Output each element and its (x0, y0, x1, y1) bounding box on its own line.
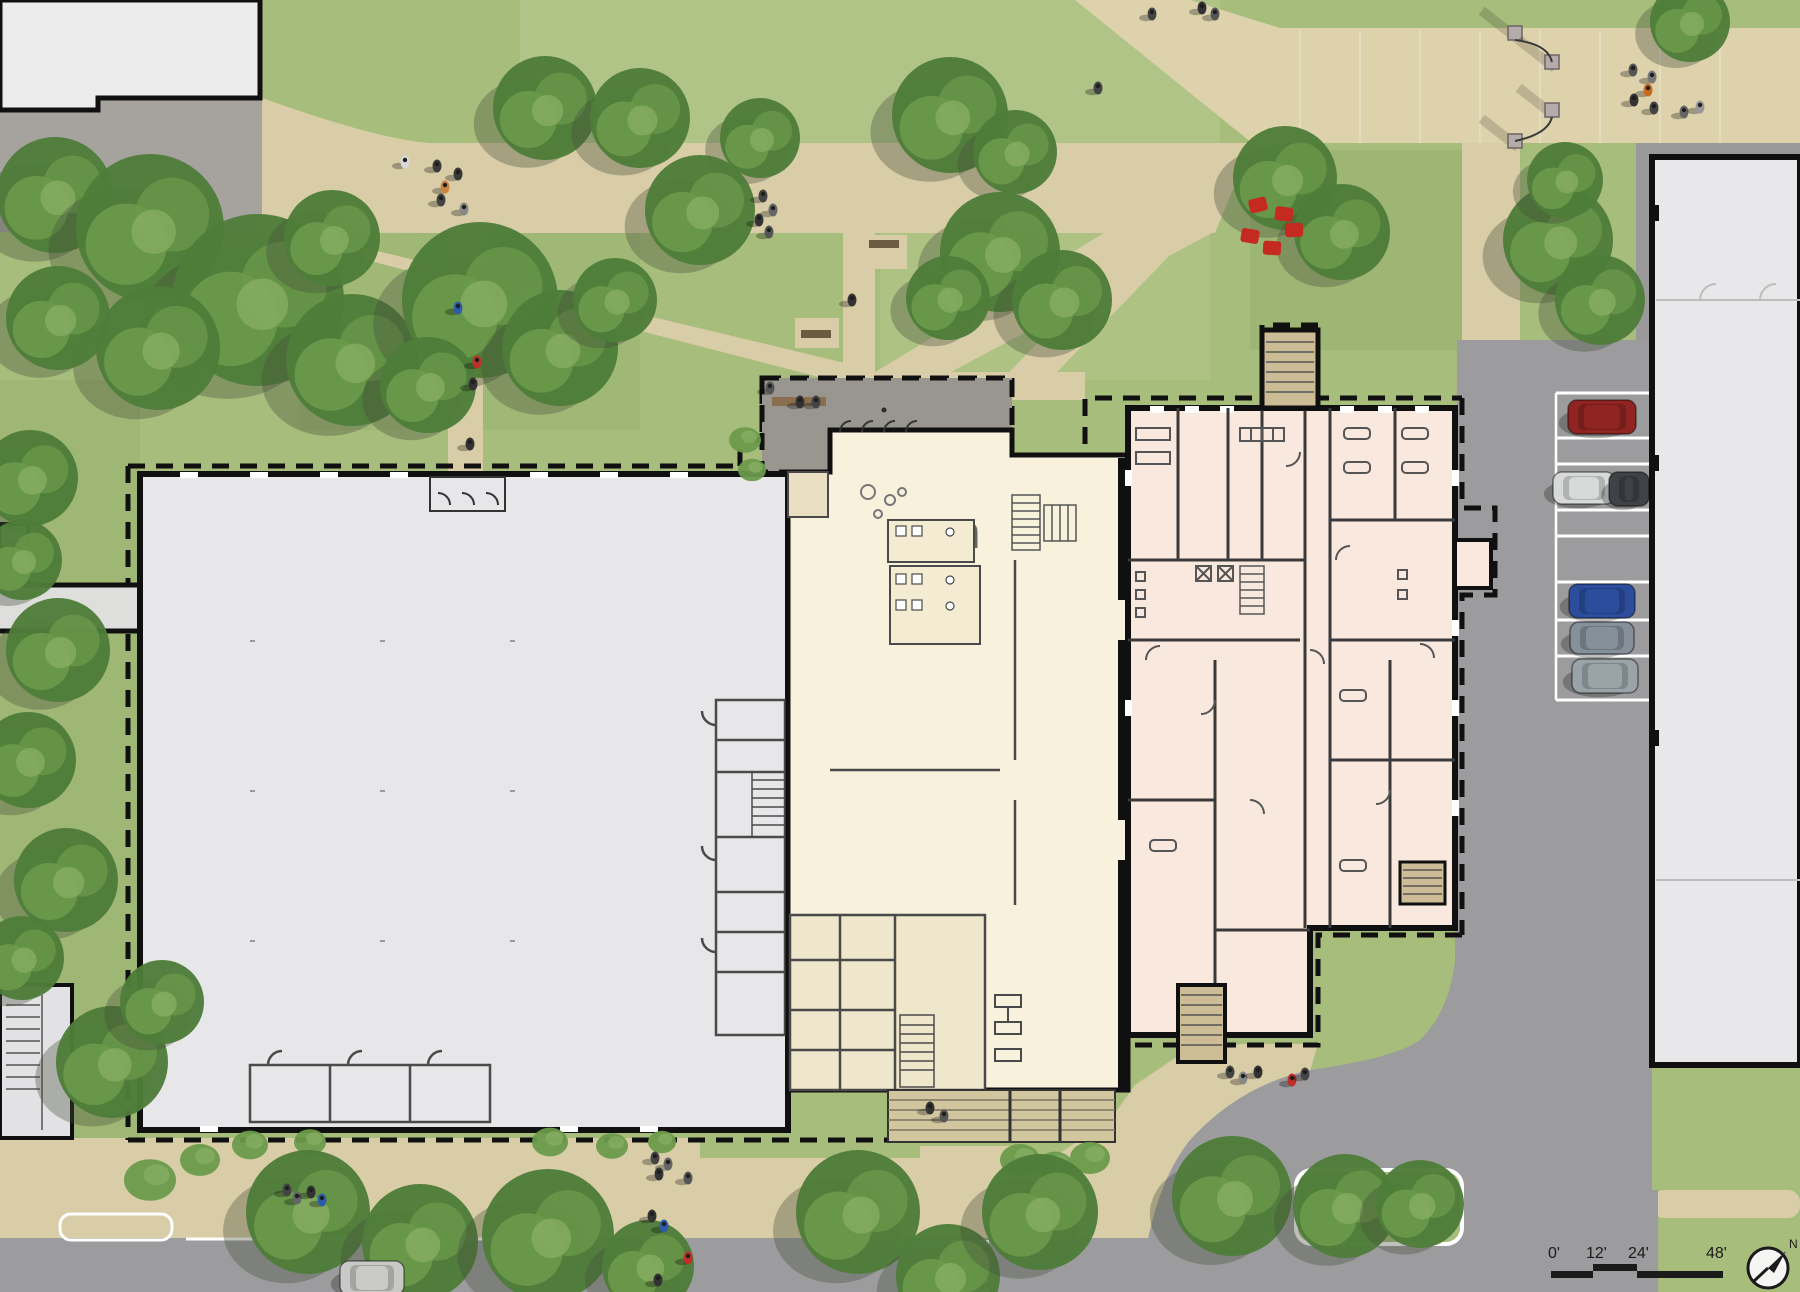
scale-label-0: 0' (1548, 1245, 1560, 1262)
bench (869, 240, 899, 248)
hall-building (1125, 330, 1491, 1035)
scale-label-12: 12' (1586, 1245, 1607, 1262)
wall-notch (1649, 455, 1659, 471)
east-stair (1400, 862, 1445, 904)
wall-notch (1649, 730, 1659, 746)
car (1559, 400, 1636, 438)
car (331, 1261, 404, 1292)
scale-label-48: 48' (1706, 1245, 1727, 1262)
restrooms (888, 520, 980, 644)
east-building (1649, 157, 1800, 1065)
wall-notch (1649, 205, 1659, 221)
bush (648, 1131, 676, 1153)
bush (729, 427, 761, 453)
northwest-room (788, 472, 828, 517)
picnic-blanket (1274, 206, 1294, 222)
bush (232, 1131, 268, 1160)
scale-segment (1551, 1271, 1593, 1278)
bush (124, 1159, 176, 1201)
scale-label-24: 24' (1628, 1245, 1649, 1262)
car (1561, 622, 1634, 658)
picnic-blanket (1285, 223, 1303, 238)
site-plan-canvas: 0' 12' 24' 48' N (0, 0, 1800, 1292)
north-letter: N (1789, 1237, 1798, 1251)
light-pole (882, 408, 887, 413)
gym-building (140, 472, 788, 1132)
northwest-building (0, 0, 260, 110)
scale-segment (1593, 1264, 1637, 1271)
north-stair (1262, 330, 1318, 408)
bush (532, 1128, 568, 1157)
picnic-blanket (1263, 240, 1282, 255)
car (1560, 584, 1635, 622)
bush (738, 459, 766, 481)
bush (180, 1144, 220, 1176)
east-south-sidewalk (1652, 1190, 1800, 1218)
south-terrace (888, 1090, 1115, 1142)
bench (801, 330, 831, 338)
scale-segment (1637, 1271, 1723, 1278)
gym-north-entrance (430, 477, 505, 511)
bush (596, 1133, 628, 1159)
car (1563, 659, 1638, 697)
southeast-stair (1178, 985, 1225, 1062)
commons-building (788, 421, 1128, 1090)
site-plan-drawing: 0' 12' 24' 48' N (0, 0, 1800, 1292)
east-road-verge (1652, 1065, 1800, 1190)
east-porch (1455, 540, 1491, 588)
